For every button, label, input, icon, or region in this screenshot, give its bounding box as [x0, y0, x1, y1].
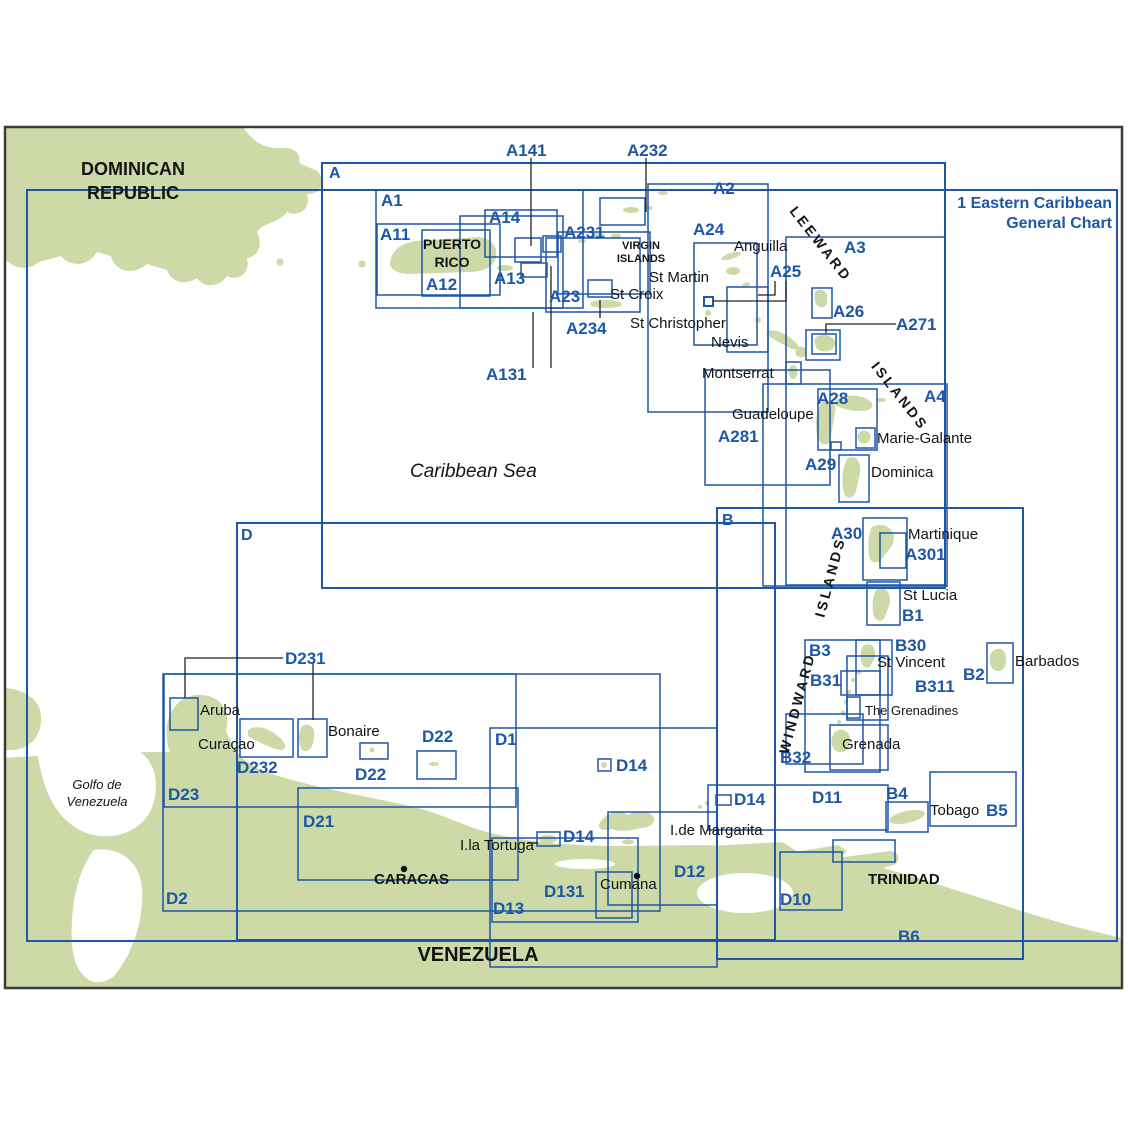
chart-label-d11-51: D11 [812, 789, 842, 806]
chart-label-a131-16: A131 [486, 366, 527, 383]
chart-label-a232-11: A232 [627, 142, 668, 159]
place-label-cumana-88: Cumana [600, 877, 657, 892]
chart-label-a13-8: A13 [494, 270, 525, 287]
chart-label-d21-47: D21 [303, 813, 334, 830]
place-label-trinidad-61: TRINIDAD [868, 872, 940, 887]
chart-label-a1-5: A1 [381, 192, 403, 209]
chart-label-d13-50: D13 [493, 900, 524, 917]
chart-label-d231-38: D231 [285, 650, 326, 667]
chart-label-a231-12: A231 [564, 224, 605, 241]
chart-label-b1-28: B1 [902, 607, 924, 624]
place-label-i-la-tortuga-87: I.la Tortuga [460, 838, 534, 853]
chart-label-b6-37: B6 [898, 928, 920, 945]
place-label-caribbean-sea-63: Caribbean Sea [410, 462, 537, 481]
place-label-st-martin-71: St Martin [649, 270, 709, 285]
chart-label-d14-46: D14 [563, 828, 594, 845]
place-label-tobago-85: Tobago [930, 803, 979, 818]
place-label-puerto-56: PUERTO [423, 237, 481, 251]
chart-label-d22-41: D22 [355, 766, 386, 783]
chart-label-b-3: B [722, 513, 734, 529]
place-label-i-de-margarita-86: I.de Margarita [670, 823, 763, 838]
chart-label-a28-22: A28 [817, 390, 848, 407]
place-label-golfo-de-64: Golfo de [72, 778, 121, 791]
place-label-grenada-84: Grenada [842, 737, 900, 752]
place-label-guadeloupe-76: Guadeloupe [732, 407, 814, 422]
chart-label-1-eastern-caribbean-0: 1 Eastern Caribbean [957, 196, 1112, 212]
place-label-virgin-58: VIRGIN [622, 241, 660, 252]
place-label-islands-67: ISLANDS [869, 359, 931, 433]
chart-label-general-chart-1: General Chart [1006, 216, 1112, 232]
place-label-anguilla-70: Anguilla [734, 239, 787, 254]
chart-label-d12-48: D12 [674, 863, 705, 880]
chart-label-a24-17: A24 [693, 221, 724, 238]
chart-label-a271-21: A271 [896, 316, 937, 333]
place-label-martinique-79: Martinique [908, 527, 978, 542]
chart-label-a4-25: A4 [924, 388, 946, 405]
place-label-the-grenadines-83: The Grenadines [865, 704, 958, 717]
place-label-venezuela-65: Venezuela [67, 795, 128, 808]
chart-label-b31-31: B31 [810, 672, 841, 689]
chart-label-a25-18: A25 [770, 263, 801, 280]
chart-label-a29-24: A29 [805, 456, 836, 473]
chart-label-d-4: D [241, 528, 253, 544]
chart-label-a281-23: A281 [718, 428, 759, 445]
place-label-aruba-89: Aruba [200, 703, 240, 718]
chart-label-d23-40: D23 [168, 786, 199, 803]
chart-label-a23-14: A23 [549, 288, 580, 305]
chart-index-map: 1 Eastern CaribbeanGeneral ChartABDA1A11… [0, 0, 1128, 1128]
place-label-barbados-82: Barbados [1015, 654, 1079, 669]
chart-label-d2-53: D2 [166, 890, 188, 907]
place-label-caracas-60: CARACAS [374, 872, 449, 887]
chart-label-b4-35: B4 [886, 785, 908, 802]
chart-label-a11-6: A11 [380, 226, 410, 243]
chart-label-b5-36: B5 [986, 802, 1008, 819]
chart-label-b311-32: B311 [915, 678, 955, 695]
chart-label-d1-43: D1 [495, 731, 517, 748]
place-label-dominica-78: Dominica [871, 465, 934, 480]
place-label-st-croix-72: St Croix [610, 287, 663, 302]
place-label-st-lucia-80: St Lucia [903, 588, 957, 603]
place-label-venezuela-62: VENEZUELA [417, 945, 538, 965]
chart-label-a3-19: A3 [844, 239, 866, 256]
chart-label-d131-49: D131 [544, 883, 585, 900]
chart-label-b30-30: B30 [895, 637, 926, 654]
chart-label-a-2: A [329, 166, 341, 182]
chart-label-a14-9: A14 [489, 209, 520, 226]
chart-label-a12-7: A12 [426, 276, 457, 293]
chart-label-a301-27: A301 [905, 546, 946, 563]
place-label-cura-ao-90: Curaçao [198, 737, 255, 752]
place-label-bonaire-91: Bonaire [328, 724, 380, 739]
place-label-islands-59: ISLANDS [617, 254, 665, 265]
place-label-st-christopher-73: St Christopher [630, 316, 726, 331]
labels-layer: 1 Eastern CaribbeanGeneral ChartABDA1A11… [0, 0, 1128, 1128]
place-label-dominican-54: DOMINICAN [81, 160, 185, 178]
place-label-marie-galante-77: Marie-Galante [877, 431, 972, 446]
place-label-montserrat-75: Montserrat [702, 366, 774, 381]
chart-label-d10-52: D10 [780, 891, 811, 908]
chart-label-a2-13: A2 [713, 180, 735, 197]
chart-label-a234-15: A234 [566, 320, 607, 337]
chart-label-d14-44: D14 [616, 757, 647, 774]
chart-label-a141-10: A141 [506, 142, 547, 159]
chart-label-d232-39: D232 [237, 759, 278, 776]
chart-label-a26-20: A26 [833, 303, 864, 320]
chart-label-b2-33: B2 [963, 666, 985, 683]
chart-label-d22-42: D22 [422, 728, 453, 745]
place-label-rico-57: RICO [435, 255, 470, 269]
place-label-nevis-74: Nevis [711, 335, 749, 350]
place-label-windward-69: WINDWARD [777, 651, 817, 755]
place-label-islands-68: ISLANDS [813, 535, 848, 618]
place-label-republic-55: REPUBLIC [87, 184, 179, 202]
place-label-st-vincent-81: St Vincent [877, 655, 945, 670]
chart-label-d14-45: D14 [734, 791, 765, 808]
